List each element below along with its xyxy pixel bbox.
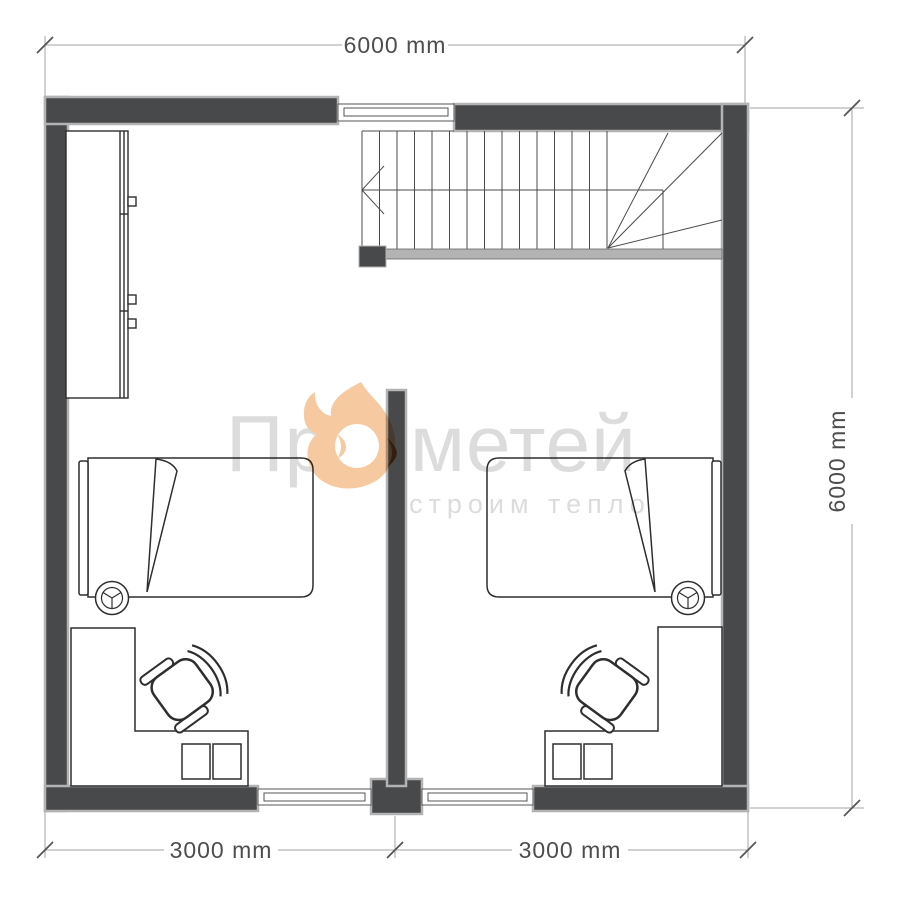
wall-left [45, 97, 68, 811]
stair-newel-post [359, 246, 386, 267]
wardrobe-handle [128, 319, 136, 328]
bed-headboard [712, 461, 721, 595]
desk-left [71, 628, 248, 786]
wall-top-right [454, 104, 748, 131]
window-top [338, 104, 454, 121]
desk-right [545, 627, 722, 786]
floor-plan: 6000 mm 6000 mm 3000 mm 3000 mm [0, 0, 900, 898]
decor-circle-right [672, 582, 705, 615]
bed-right [487, 458, 721, 597]
chair-left [139, 636, 238, 734]
desk-drawer [182, 744, 210, 779]
desk-drawer [553, 744, 581, 779]
right-dimension-label: 6000 mm [824, 410, 850, 513]
decor-circle-left [96, 582, 129, 615]
wall-top-left [45, 97, 338, 124]
desk-drawer [584, 744, 612, 779]
wardrobe-handle [128, 295, 136, 304]
window-bottom-left [258, 789, 371, 805]
top-dimension-label: 6000 mm [344, 32, 447, 58]
wall-bottom-left [45, 786, 258, 811]
bottom-dimension [37, 811, 756, 858]
chair-right [551, 636, 650, 734]
floor-plan-drawing: 6000 mm 6000 mm 3000 mm 3000 mm [0, 0, 900, 898]
desk-drawer [213, 744, 241, 779]
wall-right [722, 104, 748, 811]
bed-headboard [79, 461, 88, 595]
staircase [362, 131, 722, 249]
bottom-right-dimension-label: 3000 mm [519, 837, 622, 863]
stair-stringer [386, 249, 722, 259]
wall-bottom-right [533, 786, 748, 811]
wardrobe [66, 131, 136, 398]
window-bottom-right [422, 789, 533, 805]
partition-wall [387, 390, 406, 786]
bottom-left-dimension-label: 3000 mm [170, 837, 273, 863]
wardrobe-handle [128, 197, 136, 206]
bed-left [79, 458, 313, 597]
